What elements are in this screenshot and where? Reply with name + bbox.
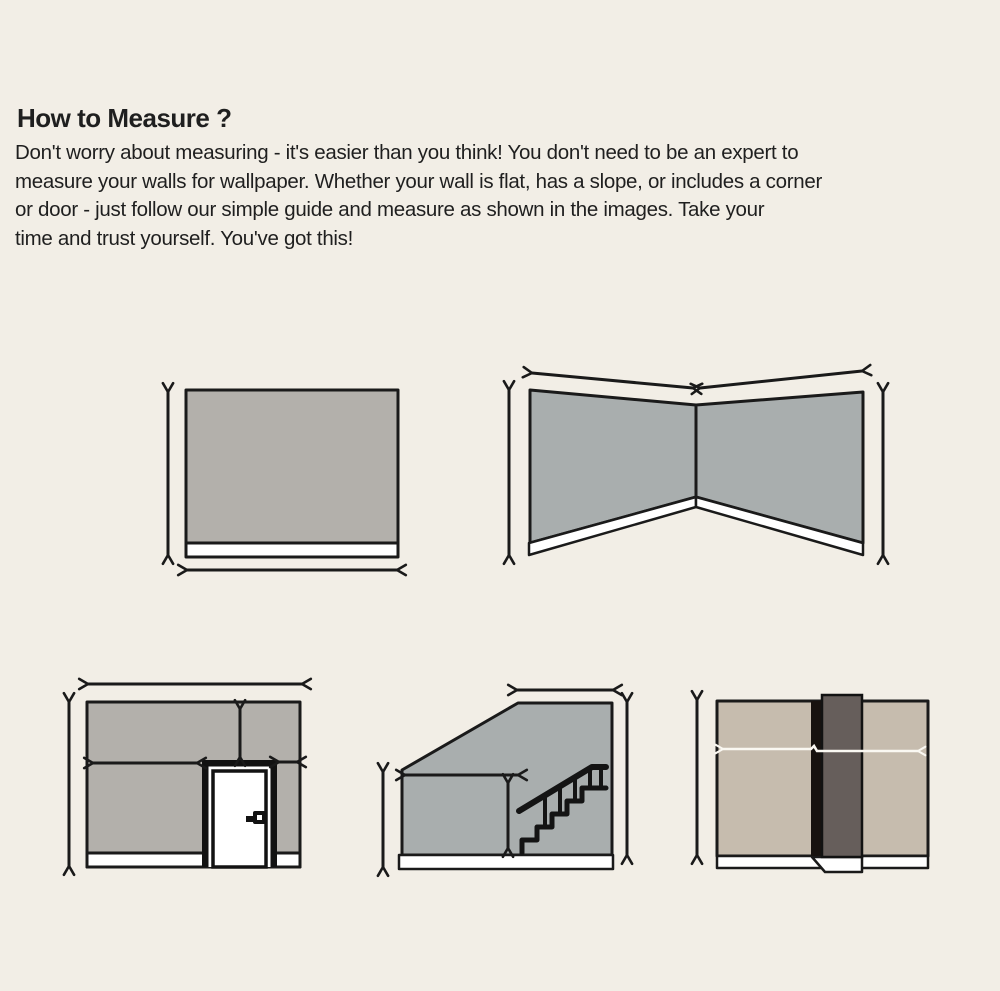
wall-with-door-diagram — [55, 670, 317, 884]
intro-line-2: measure your walls for wallpaper. Whethe… — [15, 168, 822, 197]
sloped-wall-staircase-diagram — [375, 680, 643, 882]
intro-line-3: or door - just follow our simple guide a… — [15, 196, 822, 225]
column-front — [822, 695, 862, 857]
flat-wall-diagram — [150, 378, 410, 590]
column-baseboard-notch — [812, 857, 862, 872]
how-to-measure-guide: How to Measure ? Don't worry about measu… — [0, 0, 1000, 991]
flat-wall-surface — [186, 390, 398, 543]
intro-paragraph: Don't worry about measuring - it's easie… — [15, 139, 822, 253]
intro-line-4: time and trust yourself. You've got this… — [15, 225, 822, 254]
intro-line-1: Don't worry about measuring - it's easie… — [15, 139, 822, 168]
left-width-measure-arrow — [532, 373, 693, 388]
sloped-wall-baseboard — [399, 855, 613, 869]
flat-wall-baseboard — [186, 543, 398, 557]
page-title: How to Measure ? — [17, 103, 231, 134]
corner-wall-diagram — [500, 358, 900, 572]
wall-with-column-diagram — [685, 680, 943, 886]
right-width-measure-arrow — [700, 371, 862, 388]
